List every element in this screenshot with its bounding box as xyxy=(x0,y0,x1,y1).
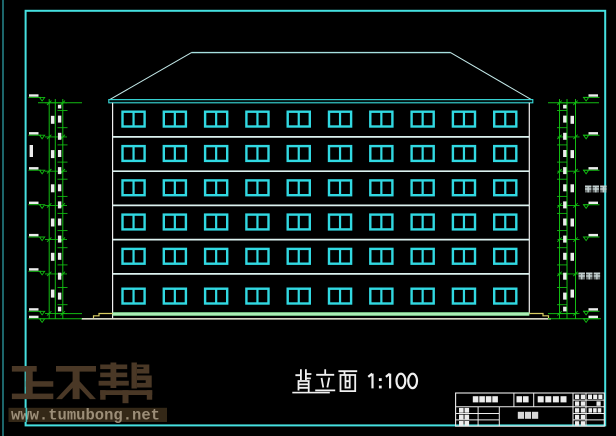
svg-text:www.tumubong.net: www.tumubong.net xyxy=(11,406,160,424)
